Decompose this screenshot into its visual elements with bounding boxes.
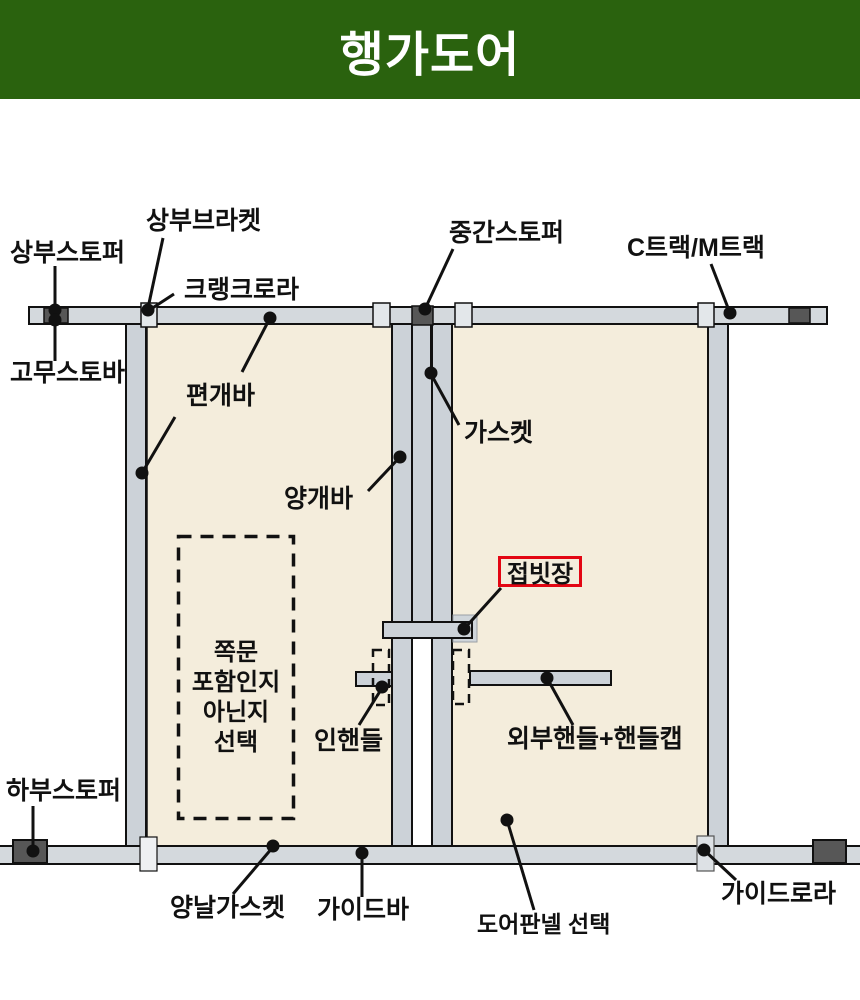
label-double-edge-gasket: 양날가스켓 bbox=[170, 895, 285, 921]
roller-center-right bbox=[455, 303, 472, 327]
label-rubber-stopper: 고무스토바 bbox=[10, 360, 125, 386]
label-gasket: 가스켓 bbox=[464, 420, 533, 446]
door-diagram-graphic bbox=[0, 0, 860, 1000]
label-outer-handle: 외부핸들+핸들캡 bbox=[507, 726, 683, 752]
hanger-door-diagram-page: 행가도어 bbox=[0, 0, 860, 1000]
label-single-swing-bar: 편개바 bbox=[186, 383, 255, 409]
label-door-panel-select: 도어판넬 선택 bbox=[477, 912, 610, 936]
label-bottom-stopper: 하부스토퍼 bbox=[6, 778, 121, 804]
note-line-1: 쪽문 bbox=[177, 638, 295, 668]
label-middle-stopper: 중간스토퍼 bbox=[449, 220, 564, 246]
pointer-top-stopper bbox=[49, 266, 62, 317]
top-right-stopper-block bbox=[789, 308, 810, 323]
note-line-3: 아닌지 bbox=[177, 698, 295, 728]
label-double-swing-bar: 양개바 bbox=[284, 486, 353, 512]
side-door-option-note: 쪽문 포함인지 아닌지 선택 bbox=[177, 535, 295, 820]
pointer-guide-bar bbox=[356, 847, 369, 898]
center-right-bar bbox=[432, 322, 452, 847]
label-crank-roller: 크랭크로라 bbox=[184, 277, 299, 303]
label-guide-bar: 가이드바 bbox=[317, 897, 409, 923]
bottom-right-stopper-block bbox=[813, 840, 846, 863]
center-left-bar bbox=[392, 322, 412, 847]
label-track-type: C트랙/M트랙 bbox=[627, 235, 765, 261]
right-side-bar bbox=[708, 322, 728, 847]
note-line-4: 선택 bbox=[177, 728, 295, 758]
pointer-middle-stopper bbox=[419, 249, 454, 316]
pointer-top-bracket bbox=[148, 238, 163, 308]
roller-right bbox=[698, 303, 714, 327]
label-inner-handle: 인핸들 bbox=[314, 728, 383, 754]
label-guide-roller: 가이드로라 bbox=[721, 881, 836, 907]
label-top-bracket: 상부브라켓 bbox=[146, 208, 261, 234]
label-folding-latch-highlighted: 접빗장 bbox=[498, 556, 582, 587]
guide-roller-left bbox=[140, 837, 157, 871]
pointer-bottom-stopper bbox=[27, 806, 40, 858]
pointer-rubber-stopper bbox=[49, 314, 62, 362]
note-line-2: 포함인지 bbox=[177, 668, 295, 698]
roller-center-left bbox=[373, 303, 390, 327]
label-top-stopper: 상부스토퍼 bbox=[10, 240, 125, 266]
left-swing-bar bbox=[126, 322, 146, 847]
bottom-track bbox=[0, 846, 860, 864]
